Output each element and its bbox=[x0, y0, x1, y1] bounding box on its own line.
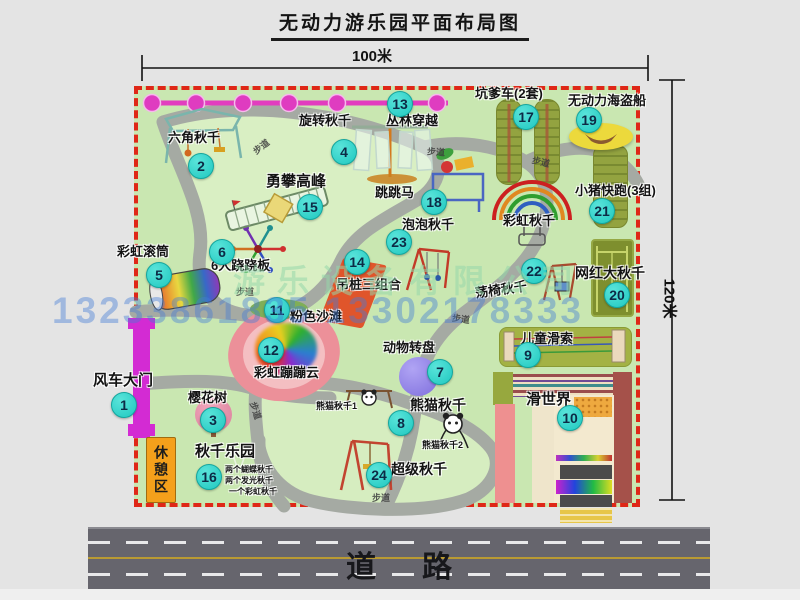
facility-label-panda-swing: 熊猫秋千 bbox=[410, 398, 466, 413]
road-label: 道路 bbox=[88, 542, 710, 586]
slide-world-right-band bbox=[613, 372, 632, 503]
facility-label-hexagon-swing: 六角秋千 bbox=[168, 131, 220, 145]
facility-label-rotating-swing: 旋转秋千 bbox=[299, 114, 351, 128]
facility-label-rainbow-cloud: 彩虹蹦蹦云 bbox=[254, 366, 319, 380]
facility-label-jungle-crossing: 丛林穿越 bbox=[386, 114, 438, 128]
facility-badge-9: 9 bbox=[515, 342, 541, 368]
facility-badge-3: 3 bbox=[200, 407, 226, 433]
slide-world-pink-band bbox=[495, 404, 515, 503]
facility-badge-5: 5 bbox=[146, 262, 172, 288]
facility-label-pirate-ship: 无动力海盗船 bbox=[568, 94, 646, 108]
page-bottom-strip bbox=[0, 589, 800, 600]
path-label: 步道 bbox=[372, 491, 390, 504]
windmill-gate-top-cap bbox=[128, 318, 155, 329]
facility-badge-11: 11 bbox=[264, 297, 290, 323]
rainbow-swing-label: 彩虹秋千 bbox=[503, 214, 555, 228]
facility-label-windmill-gate: 风车大门 bbox=[93, 373, 153, 389]
facility-badge-10: 10 bbox=[557, 405, 583, 431]
facility-label-swing-park: 秋千乐园 bbox=[195, 444, 255, 460]
swing-note-2: 两个发光秋千 bbox=[225, 477, 273, 485]
facility-badge-13: 13 bbox=[387, 91, 413, 117]
slide-world-olive-block bbox=[493, 372, 513, 405]
facility-badge-24: 24 bbox=[366, 462, 392, 488]
facility-badge-22: 22 bbox=[521, 258, 547, 284]
facility-badge-15: 15 bbox=[297, 194, 323, 220]
slide-world-rainbow-band bbox=[556, 480, 612, 494]
path-label: 步道 bbox=[236, 285, 254, 298]
facility-badge-4: 4 bbox=[331, 139, 357, 165]
slide-world-yellow-band bbox=[560, 508, 612, 523]
facility-label-animal-turntable: 动物转盘 bbox=[383, 341, 435, 355]
facility-badge-17: 17 bbox=[513, 104, 539, 130]
facility-label-hanging-pile: 吊桩三组合 bbox=[336, 278, 401, 292]
slide-world-area bbox=[492, 368, 636, 505]
facility-badge-12: 12 bbox=[258, 337, 284, 363]
slide-world-black-band-2 bbox=[560, 495, 612, 507]
facility-label-big-swing: 网红大秋千 bbox=[575, 266, 645, 281]
slide-world-black-band-1 bbox=[560, 465, 612, 479]
facility-badge-21: 21 bbox=[589, 198, 615, 224]
road: 道路 bbox=[88, 527, 710, 589]
facility-badge-16: 16 bbox=[196, 464, 222, 490]
rest-area-label: 休憩区 bbox=[151, 445, 171, 496]
dimension-height-label: 120米 bbox=[660, 278, 681, 318]
swing-note-1: 两个蝴蝶秋千 bbox=[225, 466, 273, 474]
facility-label-climbing-peak: 勇攀高峰 bbox=[266, 174, 326, 190]
facility-badge-19: 19 bbox=[576, 107, 602, 133]
panda-swing-1-label: 熊猫秋千1 bbox=[316, 402, 357, 411]
path-label: 步道 bbox=[427, 144, 446, 158]
facility-label-super-swing: 超级秋千 bbox=[391, 462, 447, 477]
slide-world-thin-rainbow bbox=[556, 455, 612, 461]
facility-badge-20: 20 bbox=[604, 282, 630, 308]
facility-badge-18: 18 bbox=[421, 189, 447, 215]
slide-world-cream-col bbox=[532, 395, 554, 503]
facility-label-jumping-horse: 跳跳马 bbox=[375, 186, 414, 200]
facility-badge-1: 1 bbox=[111, 392, 137, 418]
facility-badge-14: 14 bbox=[344, 249, 370, 275]
facility-badge-8: 8 bbox=[388, 410, 414, 436]
facility-badge-7: 7 bbox=[427, 359, 453, 385]
park-layout-map: 无动力游乐园平面布局图 100米 120米 bbox=[0, 0, 800, 600]
page-title: 无动力游乐园平面布局图 bbox=[271, 8, 529, 41]
facility-label-cherry-tree: 樱花树 bbox=[188, 391, 227, 405]
facility-badge-23: 23 bbox=[386, 229, 412, 255]
panda-swing-2-label: 熊猫秋千2 bbox=[422, 441, 463, 450]
facility-badge-6: 6 bbox=[209, 239, 235, 265]
swing-note-3: 一个彩虹秋千 bbox=[229, 488, 277, 496]
facility-badge-2: 2 bbox=[188, 153, 214, 179]
facility-label-pink-beach: 粉色沙滩 bbox=[290, 310, 342, 324]
facility-label-piggy-run: 小猪快跑(3组) bbox=[575, 184, 656, 198]
facility-label-rainbow-roller: 彩虹滚筒 bbox=[117, 245, 169, 259]
rest-area-sign: 休憩区 bbox=[146, 437, 176, 503]
windmill-gate-bottom-cap bbox=[128, 424, 155, 436]
facility-label-bubble-swing: 泡泡秋千 bbox=[402, 218, 454, 232]
dimension-width-label: 100米 bbox=[352, 45, 392, 66]
path-label: 步道 bbox=[451, 311, 471, 326]
facility-label-pit-car: 坑爹车(2套) bbox=[475, 87, 543, 101]
